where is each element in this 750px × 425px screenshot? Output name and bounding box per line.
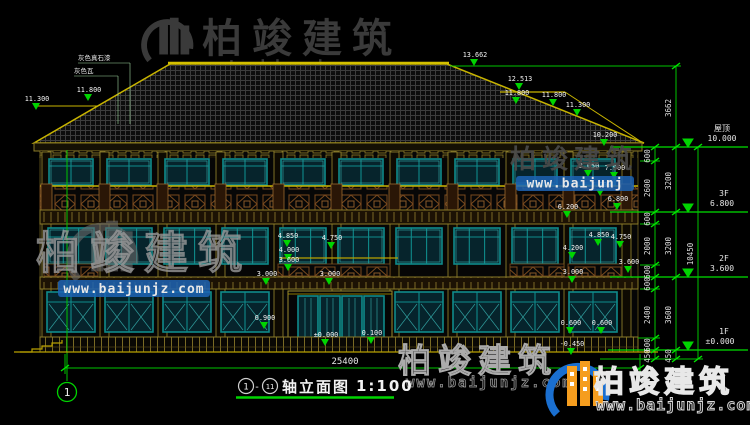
floor-band-3f [40,210,638,224]
elevation-value: 11.800 [542,91,567,99]
elevation-value: 6.200 [558,203,578,211]
floor-level-label: 3.600 [710,264,734,273]
axis-dash: - [254,382,260,393]
elevation-value: 4.850 [278,232,298,240]
elevation-value: 4.750 [611,233,631,241]
dimension-text: 2400 [643,305,652,324]
dimension-text: 2600 [643,178,652,197]
elevation-value: 0.900 [255,314,275,322]
elevation-value: 11.800 [77,86,102,94]
dimension-text: 450 [664,349,673,363]
elevation-value: 4.850 [589,231,609,239]
elevation-value: ±0.000 [314,331,339,339]
floor-level-label: 10.000 [708,134,737,143]
elevation-value: 0.100 [362,329,382,337]
dimension-text: 3662 [664,99,673,117]
elevation-value: 11.300 [566,101,591,109]
axis-start-number: 1 [243,383,248,393]
dimension-text: 600 [643,265,652,279]
elevation-value: 11.300 [25,95,50,103]
elevation-value: -0.450 [560,340,585,348]
floor-level-label: 屋顶 [714,124,730,133]
elevation-value: 3.600 [619,258,639,266]
dimension-text: 600 [643,277,652,291]
elevation-value: 0.600 [561,319,581,327]
cad-canvas: 柏竣建筑 www.baijunjz.com [0,0,750,425]
material-label: 灰色真石漆 [78,53,111,62]
floor-level-label: 3F [719,189,729,198]
elevation-value: 12.513 [508,75,533,83]
elevation-value: 3.000 [563,268,583,276]
watermark-url: www.baijunjz.com [63,282,204,297]
floor-level-label: 1F [719,327,729,336]
elevation-value: 3.000 [257,270,277,278]
dimension-text: 3200 [664,171,673,190]
dimension-text: 450 [643,349,652,363]
watermark-bottom-center: 柏竣建筑 www.baijunjz.com [398,341,573,391]
dimension-text: 3600 [664,305,673,324]
dimension-text: 3200 [664,236,673,255]
elevation-value: 3.000 [320,270,340,278]
building-elevation [20,63,644,352]
watermark-url: www.baijunjz.com [596,396,750,414]
drawing-title: 轴立面图 [282,378,350,396]
dimension-text: 10450 [686,242,695,265]
dimension-text: 600 [643,149,652,163]
drawing-scale: 1:100 [356,377,414,395]
elevation-value: 13.662 [463,51,488,59]
elevation-value: 0.600 [592,319,612,327]
watermark-right: 柏竣建筑 www.baijunj [510,144,638,192]
elevation-value: 4.200 [563,244,583,252]
dimension-text: 2000 [643,236,652,255]
watermark-url: www.baijunj [526,177,623,192]
floor-level-label: 6.800 [710,199,734,208]
floor-level-label: ±0.000 [706,337,735,346]
dimension-text: 25400 [331,357,358,367]
elevation-value: 10.200 [593,131,618,139]
floor-level-label: 2F [719,254,729,263]
elevation-value: 4.750 [322,234,342,242]
material-label: 灰色瓦 [74,66,94,75]
elevation-value: 6.800 [608,195,628,203]
watermark-brand: 柏竣建筑 [594,365,734,400]
watermark-brand: 柏竣建筑 [202,16,402,62]
axis-end-number: 11 [266,383,274,391]
watermark-brand: 柏竣建筑 [36,228,252,279]
watermark-brand: 柏竣建筑 [510,144,638,175]
elevation-value: 3.600 [279,256,299,264]
elevation-value: 4.000 [279,246,299,254]
elevation-value: 11.800 [505,89,530,97]
dimension-text: 600 [643,212,652,226]
axis-bubble-number: 1 [64,386,71,399]
